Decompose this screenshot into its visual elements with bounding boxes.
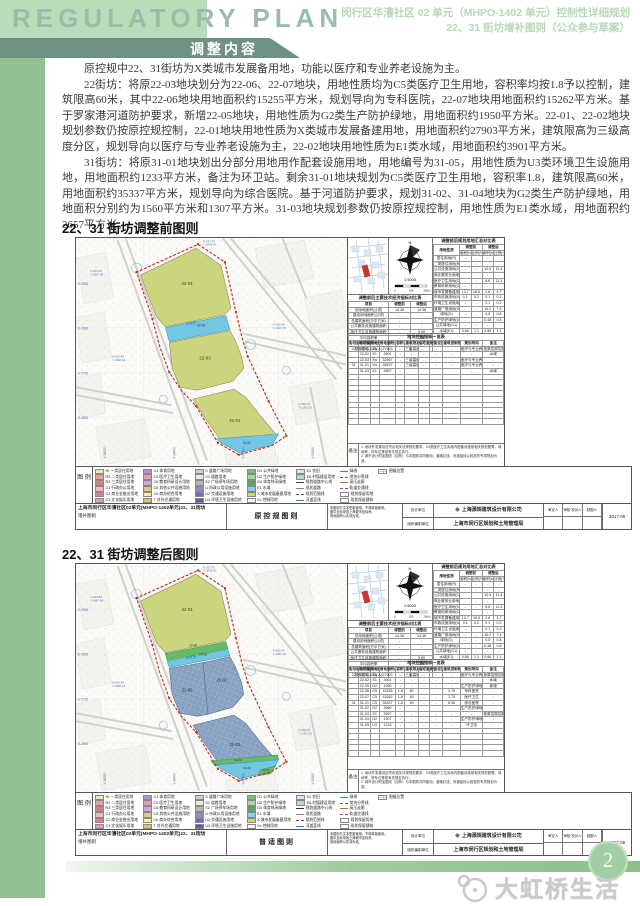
locator-compass-row: N1:50000100200m — [348, 238, 432, 295]
scale-bar-segment — [403, 611, 411, 613]
tspan: Y-1362.93 — [298, 405, 312, 409]
legend-item-label: E1 水域 — [257, 486, 270, 491]
table-cell: 生产防护绿地 — [460, 683, 483, 689]
table-cell: 医疗与专业养老设施 — [460, 346, 483, 352]
table-cell: 城市发展备建用地(X) — [434, 289, 460, 295]
legend-item-label: C8 其他公共设施用地 — [154, 486, 190, 491]
legend-item-label: S 道路广场用地 — [205, 469, 231, 474]
parcel-label: 22-07 — [217, 677, 228, 682]
plan-title-line2: 22、31 街坊增补图则（公众参与草案） — [341, 21, 630, 36]
table-cell: 面积(ha) — [460, 250, 472, 256]
table-cell: 道路广场用地(S) — [434, 306, 460, 312]
legend-item-label: C2 商业金融业用地 — [106, 818, 139, 823]
scale-tick: 200m — [424, 289, 432, 293]
org-unit-label: 组织编制单位 — [403, 518, 434, 530]
boundary-stake — [238, 780, 240, 782]
scale-bar-segment — [395, 285, 403, 287]
parcel-label: 31-03 — [243, 766, 251, 770]
date-cell: 2017.08 — [603, 504, 631, 529]
signature-blank — [544, 517, 563, 529]
boundary-stake — [151, 644, 153, 646]
section-banner-label: 调整内容 — [0, 39, 258, 59]
table-cell: 水域(E1) — [434, 654, 460, 659]
table-cell: 22-01 — [359, 672, 370, 678]
legend-item-label: Cb 商办综合用地 — [154, 818, 183, 823]
org-unit-row: 组织编制单位上海市闵行区规划和土地管理局 — [403, 518, 543, 530]
units-cell: 设计单位◆上海源规建筑设计有限公司组织编制单位上海市闵行区规划和土地管理局 — [403, 504, 544, 529]
legend-item-label: 图幅位置 — [389, 469, 404, 474]
legend-item-label: G1 公共绿地 — [257, 469, 278, 474]
tspan: Y-1467.68 — [90, 598, 104, 602]
legend-item-label: G2 生产防护绿地 — [257, 801, 286, 806]
table-cell: 按原控规控制 — [483, 346, 504, 352]
table-a-header: 用地性质调整前调整后 — [434, 245, 505, 251]
boundary-stake — [195, 405, 197, 407]
legend-item-label: S1 道路用地 — [205, 801, 226, 806]
table-cell: 环境卫生设施用地(U3) — [434, 626, 460, 632]
table-cell: 公共服务设施建筑面积 — [349, 324, 389, 330]
scale-bar-segment — [411, 285, 419, 287]
legend-items: Rr 一类居住用地R2 二类居住用地R3 三类居住用地C1 行政办公用地C2 商… — [93, 793, 631, 831]
signature-header: 审核·校对人 — [563, 504, 582, 517]
locator-map-svg — [348, 564, 388, 620]
legend-line-swatch — [296, 494, 304, 495]
table-a: 用地性质调整前调整后面积(ha)比例(%)面积(ha)比例(%)居住用地(R)-… — [433, 570, 504, 659]
design-unit-label: 设计单位 — [403, 504, 434, 517]
legend-item-label: C2 商业金融业用地 — [106, 492, 139, 497]
boundary-stake — [224, 587, 226, 589]
legend-item-label: R2 二类居住用地 — [106, 801, 135, 806]
scale-tick: 100 — [409, 615, 414, 619]
parcel-label: 31-04 — [262, 768, 270, 772]
notes-body: 1. 地块开发建设应符合相关法规规范要求，C5类医疗卫生用地内配套设施按相关规范… — [359, 770, 504, 792]
legend-item-label: Rr 一类居住用地 — [106, 795, 134, 800]
parcel-label: 22-01 — [181, 607, 193, 612]
table-cell: 容积率 — [396, 667, 405, 673]
legend-line-swatch — [296, 808, 304, 809]
legend-item-label: G4 体育休闲绿地 — [257, 806, 286, 811]
coordinate-callout: X-255.50Y-1398.62 — [112, 680, 126, 687]
legend-item-label: 地块分界线 — [350, 475, 369, 480]
intro-paragraph-1: 原控规中22、31街坊为X类城市发展备用地，功能以医疗和专业养老设施为主。 — [62, 62, 630, 78]
tspan: Y-1362.93 — [298, 731, 312, 735]
legend-label: 图 例 — [76, 793, 93, 831]
locator-block — [372, 588, 379, 594]
table-cell: 教育科研用地(C6) — [434, 284, 460, 290]
signature-header: 审定人 — [544, 830, 563, 843]
table-cell: 市政设施用地(U) — [434, 295, 460, 301]
panel-left-column: N1:50000100200m调整前后主要技术经济指标对比表项目调整前调整后总用… — [348, 564, 433, 659]
legend-item-label: S 道路广场用地 — [205, 795, 231, 800]
table-cell: 按原控规控制 — [483, 672, 504, 678]
table-cell: 三级高度分区 — [405, 346, 418, 352]
signature-header: 制图人 — [583, 830, 602, 843]
table-cell: 城市发展备建用地(X) — [434, 615, 460, 621]
legend-line-swatch — [340, 482, 348, 483]
table-cell: 22-02 — [359, 678, 370, 684]
table-cell — [418, 419, 429, 425]
table-cell: 水域(E1) — [434, 328, 460, 333]
parcel-label: 31-01 — [229, 418, 241, 423]
boundary-stake — [151, 318, 153, 320]
table-cell: 公共设施用地(C) — [434, 267, 460, 273]
design-unit-name: 上海源规建筑设计有限公司 — [462, 833, 522, 839]
table-cell — [418, 750, 429, 756]
coordinate-callout: X-952.87Y-1362.93 — [298, 728, 312, 735]
legend-item-label: C6 教育科研设计用地 — [154, 806, 190, 811]
scale-text: 1:5000 — [404, 603, 417, 608]
tspan: Y-1462.76 — [273, 326, 287, 330]
table-cell: 建筑限高(米) — [405, 341, 418, 347]
scale-bar-segment — [403, 285, 411, 287]
notes-row: 备注1. 地块开发建设应符合相关法规规范要求，C5类医疗卫生用地内配套设施按相关… — [348, 443, 504, 466]
boundary-stake — [168, 697, 170, 699]
table-cell — [443, 750, 460, 756]
boundary-stake — [235, 311, 237, 313]
table-c: 街坊编号地块编号用地性质用地面积(平方米)容积率建筑限高(米)住宅套数(套)配套… — [348, 340, 504, 425]
boundary-stake — [247, 355, 249, 357]
table-cell: 建筑控制规模(万平方米) — [443, 667, 460, 673]
sheet-name-cell: 原控规图则 — [227, 504, 328, 529]
table-cell — [396, 750, 405, 756]
titleblock-notes-cell: 本图则与文本配套使用，不得单独使用。图中坐标采用上海城市坐标系。用地面积以实测为… — [328, 830, 403, 855]
legend-item-label: X 城市发展备建用地 — [257, 818, 291, 823]
after-figure-heading: 22、31 街坊调整后图则 — [62, 544, 362, 563]
parcel-label: 31-03 — [243, 441, 251, 445]
notes-line: 2. 城市设计附加图则（如有）与本图则共同使用；道路红线、河道蓝线以批准的专项规… — [361, 780, 502, 789]
scale-tick: 0 — [394, 289, 396, 293]
notes-row: 备注1. 地块开发建设应符合相关法规规范要求，C5类医疗卫生用地内配套设施按相关… — [348, 769, 504, 792]
table-cell: 二类居住用地(R2) — [434, 261, 460, 267]
grid-label-bottom: Y-19200 — [311, 773, 315, 785]
table-cell: 面积(ha) — [482, 576, 494, 582]
design-unit-logo-icon: ◆ — [455, 833, 460, 839]
boundary-stake — [285, 761, 287, 763]
table-cell — [430, 750, 443, 756]
table-cell: 商业服务业用地(C2) — [434, 598, 460, 604]
table-cell: 教育科研用地(C6) — [434, 610, 460, 616]
table-cell: 道路广场用地(S) — [434, 632, 460, 638]
locator-block — [376, 246, 383, 252]
signature-header-row: 审定人审核·校对人制图人 — [544, 504, 602, 517]
locator-map — [348, 238, 389, 294]
signature-blank — [544, 843, 563, 855]
parcel-label: 22-02 — [199, 653, 207, 657]
tspan: Y-1840.91 — [203, 243, 217, 247]
coordinate-callout: X-203.50Y-1467.68 — [90, 269, 104, 276]
table-c: 街坊编号地块编号用地性质用地面积(平方米)容积率建筑限高(米)住宅套数(套)配套… — [348, 666, 504, 757]
table-cell: 医疗卫生用地(C5) — [434, 604, 460, 610]
coordinate-callout: X-553.98Y-1462.76 — [273, 323, 287, 330]
tspan: Y-1462.76 — [273, 652, 287, 656]
signature-header-row: 审定人审核·校对人制图人 — [544, 830, 602, 843]
table-cell: 用地面积(平方米) — [379, 667, 395, 673]
boundary-stake — [247, 681, 249, 683]
after-figure: 22-0122-0522-0222-0622-0731-0131-0231-03… — [75, 563, 632, 855]
legend-item-label: Rr 一类居住用地 — [106, 469, 134, 474]
panel-top-row: N1:50000100200m调整前后主要技术经济指标对比表项目调整前调整后总用… — [348, 564, 504, 659]
legend-item-label: Cb 商办综合用地 — [154, 492, 183, 497]
locator-block — [378, 272, 385, 278]
table-cell: 配套设施 — [430, 667, 443, 673]
locator-block — [358, 260, 365, 266]
locator-block — [368, 604, 375, 610]
table-cell: 0.66 — [460, 328, 472, 333]
scale-bar-segment — [419, 611, 427, 613]
legend-item-label: 高压走廊 — [350, 480, 365, 485]
table-cell: 1.1 — [494, 328, 505, 333]
parcel-label: 22-05 — [189, 644, 197, 648]
notes-line: 2. 城市设计附加图则（如有）与本图则共同使用；道路红线、河道蓝线以批准的专项规… — [361, 454, 502, 463]
grid-label-left: E-2800 — [78, 416, 88, 420]
parcel-label: 22-06 — [182, 687, 193, 692]
legend-line-swatch — [296, 820, 304, 821]
legend-item-label: 绿线 — [350, 469, 358, 474]
units-cell: 设计单位◆上海源规建筑设计有限公司组织编制单位上海市闵行区规划和土地管理局 — [403, 830, 544, 855]
boundary-stake — [197, 569, 199, 571]
table-cell: 生产防护绿地 — [460, 706, 483, 712]
table-cell: 医疗与专业养老设施 — [460, 363, 483, 369]
scale-bar-segment — [419, 285, 427, 287]
table-cell — [430, 419, 443, 425]
page: REGULATORY PLAN 闵行区华漕社区 02 单元（MHPO-1402 … — [0, 0, 640, 906]
legend-line-swatch — [340, 803, 348, 804]
legend-item-label: U2 交通设施用地 — [205, 492, 234, 497]
table-cell: 公共设施用地(C) — [434, 593, 460, 599]
table-cell — [349, 750, 359, 756]
boundary-stake — [224, 261, 226, 263]
legend-item: 图幅位置 — [378, 795, 404, 801]
coordinate-callout: X-257.70Y-1840.91 — [203, 565, 217, 572]
table-cell — [379, 419, 395, 425]
table-cell: 总建筑面积(万平方米) — [349, 644, 389, 650]
table-cell — [443, 419, 460, 425]
locator-block — [372, 262, 379, 268]
table-a-title: 调整前后规划用地汇总对比表 — [433, 564, 504, 570]
legend-item-label: 绿线 — [350, 795, 358, 800]
design-unit-value: ◆上海源规建筑设计有限公司 — [434, 504, 543, 517]
boundary-stake — [268, 726, 270, 728]
legend-item-label: R3 三类居住用地 — [106, 480, 135, 485]
legend-item-label: E6 村镇建设用地 — [307, 475, 335, 480]
table-cell: 面积(ha) — [482, 250, 494, 256]
boundary-stake — [217, 442, 219, 444]
project-title-cell: 上海市闵行区华漕社区02单元(MHPO-1402单元)22、31街坊增补图则 — [76, 830, 227, 855]
locator-highlight — [362, 264, 371, 277]
signature-blank — [563, 843, 582, 855]
table-cell: 居住用地(R) — [434, 582, 460, 588]
notes-body: 1. 地块开发建设应符合相关法规规范要求，C5类医疗卫生用地内配套设施按相关规范… — [359, 444, 504, 466]
table-cell: 配套设施 — [430, 341, 443, 347]
legend-item-label: E6 村镇建设用地 — [307, 801, 335, 806]
parcel-label: 22-03 — [199, 355, 211, 360]
grid-label-bottom: Y-18400 — [172, 447, 176, 459]
locator-map — [348, 564, 389, 620]
panel-right-column: 调整前后规划用地汇总对比表用地性质调整前调整后面积(ha)比例(%)面积(ha)… — [433, 564, 504, 659]
legend-item-label: S1 道路用地 — [205, 475, 226, 480]
titleblock-notes-cell: 本图则与文本配套使用，不得单独使用。图中坐标采用上海城市坐标系。用地面积以实测为… — [328, 504, 403, 529]
table-cell: 地块编号 — [359, 667, 370, 673]
table-cell: 用地性质 — [434, 245, 460, 256]
table-cell: 0.66 — [482, 328, 494, 333]
design-unit-name: 上海源规建筑设计有限公司 — [462, 507, 522, 513]
locator-block — [368, 278, 375, 284]
boundary-stake — [268, 400, 270, 402]
signature-blank-row — [544, 517, 602, 529]
table-cell — [460, 750, 483, 756]
table-cell: 22-07 — [359, 694, 370, 700]
table-a-title: 调整前后规划用地汇总对比表 — [433, 238, 504, 244]
signature-cell: 审定人审核·校对人制图人 — [544, 504, 603, 529]
scale-tick: 0 — [394, 615, 396, 619]
grid-label-left: E-2600 — [78, 327, 88, 331]
scale-text: 1:5000 — [404, 277, 417, 282]
table-cell: 比例(%) — [494, 250, 505, 256]
info-panel: N1:50000100200m调整前后主要技术经济指标对比表项目调整前调整后总用… — [347, 564, 504, 792]
legend-item-label: S2 广场停车场用地 — [205, 480, 237, 485]
table-cell — [396, 419, 405, 425]
legend-line-swatch — [340, 797, 348, 798]
locator-map-svg — [348, 238, 388, 294]
north-n: N — [409, 566, 412, 571]
legend-item-label: G4 体育休闲绿地 — [257, 480, 286, 485]
legend-item-label: 规划道路中心线 — [306, 806, 333, 811]
table-cell: 31-03 — [359, 711, 370, 717]
titleblock-note-line: 用地面积以实测为准。 — [330, 840, 400, 844]
legend-line-swatch — [296, 826, 304, 827]
table-a: 用地性质调整前调整后面积(ha)比例(%)面积(ha)比例(%)居住用地(R)-… — [433, 244, 504, 333]
legend: 图 例Rr 一类居住用地R2 二类居住用地R3 三类居住用地C1 行政办公用地C… — [75, 466, 632, 506]
table-cell: 31-01 — [359, 363, 370, 369]
before-figure: 22-0122-0222-0331-0131-03罗家港X-203.50Y-14… — [75, 237, 632, 529]
table-a-row: 水域(E1)0.661.10.661.1 — [434, 328, 505, 333]
project-title-line1: 上海市闵行区华漕社区02单元(MHPO-1402单元)22、31街坊 — [76, 830, 226, 838]
parcel-label: 22-02 — [197, 324, 206, 328]
panel-left-column: N1:50000100200m调整前后主要技术经济指标对比表项目调整前调整后总用… — [348, 238, 433, 333]
legend-item-label: 规划道路中心线 — [306, 480, 333, 485]
legend-item-label: R3 三类居住用地 — [106, 806, 135, 811]
coordinate-callout: X-952.87Y-1362.93 — [298, 402, 312, 409]
table-cell — [379, 750, 395, 756]
table-cell: 生产防护绿地(G2) — [434, 643, 460, 649]
legend-line-swatch — [296, 500, 304, 501]
left-sidebar-bar — [0, 58, 45, 898]
notes-label: 备注 — [348, 770, 359, 792]
org-unit-label: 组织编制单位 — [403, 844, 434, 856]
table-cell: 31-03 — [359, 368, 370, 374]
table-a-header: 用地性质调整前调整后 — [434, 571, 505, 577]
legend-item-label: 现状道路 — [306, 812, 321, 817]
parcel-label: 31-01 — [229, 742, 241, 747]
tspan: Y-1398.62 — [112, 358, 126, 362]
table-cell: 建设用地面积(公顷) — [349, 313, 389, 319]
table-cell: 市政设施用地(U) — [434, 621, 460, 627]
table-cell: 建筑控制规模(万平方米) — [443, 341, 460, 347]
table-cell: 比例(%) — [471, 576, 482, 582]
table-b-title: 调整前后主要技术经济指标对比表 — [348, 295, 432, 301]
table-cell: 三级高度分区 — [405, 672, 418, 678]
locator-compass-row: N1:50000100200m — [348, 564, 432, 621]
locator-block — [354, 276, 361, 282]
site-map-before: 22-0122-0222-0331-0131-03罗家港X-203.50Y-14… — [76, 238, 346, 465]
legend-item-label: E2 农田 — [307, 795, 320, 800]
tspan: Y-1467.68 — [90, 272, 104, 276]
table-c-empty-row — [349, 750, 504, 756]
legend: 图 例Rr 一类居住用地R2 二类居住用地R3 三类居住用地C1 行政办公用地C… — [75, 792, 632, 832]
legend-item-label: C1 行政办公用地 — [106, 812, 135, 817]
legend-item: 图幅位置 — [378, 469, 404, 475]
scale-tick: 200m — [424, 615, 432, 619]
legend-item-label: C5 医疗卫生用地 — [154, 475, 183, 480]
grid-label-bottom: Y-18000 — [103, 447, 107, 459]
table-cell: 31-04 — [359, 717, 370, 723]
legend-item-label: U 市政公用设施用地 — [205, 486, 239, 491]
plan-title-line1: 闵行区华漕社区 02 单元（MHPO-1402 单元）控制性详细规划 — [341, 6, 630, 21]
table-cell — [405, 419, 418, 425]
signature-header: 审定人 — [544, 504, 563, 517]
boundary-stake — [197, 243, 199, 245]
scale-bar-segment — [395, 611, 403, 613]
legend-item-label: C8 其他公共设施用地 — [154, 812, 190, 817]
notes-line: 1. 地块开发建设应符合相关法规规范要求，C5类医疗卫生用地内配套设施按相关规范… — [361, 445, 502, 454]
table-cell — [483, 419, 504, 425]
table-cell: 地块编号 — [359, 341, 370, 347]
parcel-label: 31-02 — [234, 758, 242, 762]
legend-item-label: 轨道交通线 — [350, 812, 369, 817]
boundary-stake — [235, 637, 237, 639]
before-map-frame: 22-0122-0222-0331-0131-03罗家港X-203.50Y-14… — [75, 237, 505, 468]
legend-item-label: 现状道路 — [306, 486, 321, 491]
legend-item-label: S2 广场停车场用地 — [205, 806, 237, 811]
table-cell: 1.1 — [494, 654, 505, 659]
locator-block — [364, 250, 371, 256]
coordinate-callout: X-203.50Y-1467.68 — [90, 595, 104, 602]
legend-item-label: E1 水域 — [257, 812, 270, 817]
table-cell: 建设用地面积(公顷) — [349, 639, 389, 645]
table-cell — [370, 750, 379, 756]
title-block: 上海市闵行区华漕社区02单元(MHPO-1402单元)22、31街坊增补图则原控… — [75, 503, 632, 530]
grid-label-bottom: Y-18400 — [172, 773, 176, 785]
boundary-stake — [238, 454, 240, 456]
org-unit-value: 上海市闵行区规划和土地管理局 — [434, 844, 543, 856]
compass-box: N1:50000100200m — [389, 564, 432, 620]
legend-item-label: G1 公共绿地 — [257, 795, 278, 800]
legend-item-label: C4 体育用地 — [154, 469, 175, 474]
table-cell: 环境卫生设施用地(U3) — [434, 300, 460, 306]
locator-block — [352, 246, 359, 252]
legend-label: 图 例 — [76, 467, 93, 505]
legend-item-label: 图幅位置 — [389, 795, 404, 800]
legend-items: Rr 一类居住用地R2 二类居住用地R3 三类居住用地C1 行政办公用地C2 商… — [93, 467, 631, 505]
boundary-stake — [195, 731, 197, 733]
scale-tick: 100 — [409, 289, 414, 293]
watermark-text: 大虹桥生活网 — [495, 870, 640, 906]
table-cell: 街坊编号 — [349, 341, 359, 347]
table-cell: 生产防护绿地 — [460, 717, 483, 723]
coordinate-callout: X-255.50Y-1398.62 — [112, 354, 126, 361]
grid-label-bottom: Y-18000 — [103, 773, 107, 785]
project-title-line1: 上海市闵行区华漕社区02单元(MHPO-1402单元)22、31街坊 — [76, 504, 226, 512]
table-cell: 建筑限高(米) — [405, 667, 418, 673]
table-cell: 22-05 — [359, 683, 370, 689]
legend-line-swatch — [340, 808, 348, 809]
intro-text: 原控规中22、31街坊为X类城市发展备用地，功能以医疗和专业养老设施为主。 22… — [62, 62, 630, 234]
notes-label: 备注 — [348, 444, 359, 466]
grid-label-left: E-2500 — [78, 608, 88, 612]
legend-item-label: C6 教育科研设计用地 — [154, 480, 190, 485]
table-cell: 用地性质 — [370, 341, 379, 347]
project-title-line2: 增补图则 — [76, 838, 226, 846]
